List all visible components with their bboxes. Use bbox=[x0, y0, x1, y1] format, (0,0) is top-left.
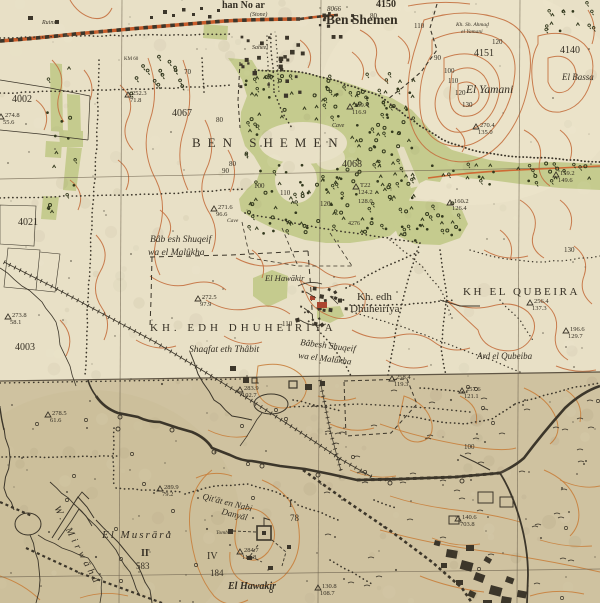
svg-text:4067: 4067 bbox=[172, 108, 192, 119]
svg-text:Cave: Cave bbox=[332, 123, 345, 129]
svg-text:116.9: 116.9 bbox=[352, 109, 366, 116]
svg-text:96.6: 96.6 bbox=[216, 211, 228, 218]
svg-text:120: 120 bbox=[320, 200, 331, 208]
svg-text:4068: 4068 bbox=[342, 159, 362, 170]
svg-text:El Yamani: El Yamani bbox=[465, 84, 513, 96]
svg-text:274.8: 274.8 bbox=[5, 112, 20, 119]
svg-text:284.7: 284.7 bbox=[244, 547, 259, 554]
svg-text:Bâb esh Shuqeif: Bâb esh Shuqeif bbox=[150, 234, 213, 245]
svg-text:289.9: 289.9 bbox=[164, 484, 179, 491]
svg-text:126.4: 126.4 bbox=[452, 205, 467, 212]
svg-text:(Stone): (Stone) bbox=[250, 11, 267, 18]
svg-text:137.3: 137.3 bbox=[532, 305, 547, 312]
svg-text:61.6: 61.6 bbox=[50, 417, 62, 424]
svg-text:71.8: 71.8 bbox=[130, 97, 141, 104]
svg-text:55.6: 55.6 bbox=[3, 119, 15, 126]
svg-text:160.2: 160.2 bbox=[454, 198, 469, 205]
svg-text:90: 90 bbox=[434, 54, 442, 62]
svg-text:278.5: 278.5 bbox=[52, 410, 67, 417]
svg-text:256.4: 256.4 bbox=[534, 298, 549, 305]
svg-text:124.2: 124.2 bbox=[358, 189, 373, 196]
svg-text:257.6: 257.6 bbox=[466, 386, 481, 393]
svg-text:4021: 4021 bbox=[18, 217, 38, 228]
svg-text:272.5: 272.5 bbox=[202, 294, 217, 301]
svg-text:4002: 4002 bbox=[12, 94, 32, 105]
svg-text:IV: IV bbox=[207, 551, 218, 562]
svg-text:130.8: 130.8 bbox=[322, 583, 337, 590]
svg-text:BEN SHEMEN: BEN SHEMEN bbox=[192, 135, 345, 150]
svg-text:159.2: 159.2 bbox=[560, 170, 575, 177]
svg-text:703.8: 703.8 bbox=[460, 521, 475, 528]
svg-text:4276: 4276 bbox=[348, 221, 360, 227]
svg-text:I: I bbox=[289, 499, 292, 510]
svg-text:Saheel: Saheel bbox=[252, 45, 268, 51]
svg-text:258.4: 258.4 bbox=[396, 374, 411, 381]
svg-text:El Hawakir: El Hawakir bbox=[227, 581, 276, 592]
svg-text:Kh. Sh. Ahmad: Kh. Sh. Ahmad bbox=[455, 22, 489, 28]
svg-text:KH EL QUBEIRA: KH EL QUBEIRA bbox=[463, 286, 580, 298]
svg-text:el Yamani: el Yamani bbox=[461, 29, 483, 35]
svg-text:130: 130 bbox=[462, 101, 473, 109]
svg-text:97.9: 97.9 bbox=[200, 301, 211, 308]
svg-text:58.1: 58.1 bbox=[10, 319, 21, 326]
svg-text:Shaqfat eth Thâbit: Shaqfat eth Thâbit bbox=[189, 344, 260, 355]
svg-text:KH. EDH DHUHEIRIYA: KH. EDH DHUHEIRIYA bbox=[150, 322, 337, 334]
svg-text:Kh. edh: Kh. edh bbox=[357, 291, 392, 303]
svg-text:wa el Malûkha: wa el Malûkha bbox=[148, 248, 205, 258]
svg-text:110.8: 110.8 bbox=[242, 554, 256, 561]
svg-text:4151: 4151 bbox=[474, 48, 494, 59]
svg-text:78: 78 bbox=[290, 513, 300, 523]
svg-text:Tomb: Tomb bbox=[216, 530, 228, 536]
svg-text:128.0: 128.0 bbox=[358, 198, 373, 205]
svg-text:El Bassa: El Bassa bbox=[561, 72, 594, 82]
svg-text:4140: 4140 bbox=[560, 45, 580, 56]
svg-text:100: 100 bbox=[464, 443, 475, 451]
svg-text:252.3: 252.3 bbox=[132, 90, 147, 97]
svg-text:129.7: 129.7 bbox=[568, 333, 583, 340]
svg-text:KM 60: KM 60 bbox=[124, 57, 139, 62]
svg-text:130: 130 bbox=[564, 246, 575, 254]
svg-text:70: 70 bbox=[184, 68, 192, 76]
svg-text:269.4: 269.4 bbox=[354, 102, 369, 109]
svg-text:119.3: 119.3 bbox=[394, 381, 408, 388]
svg-text:II: II bbox=[141, 548, 149, 559]
svg-text:140.6: 140.6 bbox=[462, 514, 477, 521]
svg-text:79.2: 79.2 bbox=[162, 491, 173, 498]
svg-text:102.7: 102.7 bbox=[242, 392, 257, 399]
svg-text:273.8: 273.8 bbox=[12, 312, 27, 319]
svg-text:121.1: 121.1 bbox=[464, 393, 479, 400]
svg-text:4150: 4150 bbox=[376, 0, 396, 10]
svg-text:Ben Shemen: Ben Shemen bbox=[326, 12, 398, 27]
svg-text:Ruins: Ruins bbox=[41, 20, 56, 26]
svg-text:184: 184 bbox=[210, 568, 224, 578]
svg-text:108.7: 108.7 bbox=[320, 590, 335, 597]
svg-text:120: 120 bbox=[492, 38, 503, 46]
svg-text:583: 583 bbox=[136, 561, 150, 571]
svg-text:110: 110 bbox=[448, 77, 459, 85]
svg-text:271.6: 271.6 bbox=[218, 204, 233, 211]
svg-text:135.0: 135.0 bbox=[478, 129, 493, 136]
svg-text:El Musrāra: El Musrāra bbox=[101, 529, 173, 541]
svg-text:270.4: 270.4 bbox=[480, 122, 495, 129]
svg-text:Dhuheirīya: Dhuheirīya bbox=[350, 303, 400, 315]
svg-text:110: 110 bbox=[414, 22, 425, 30]
svg-text:Ard el Qubeiba: Ard el Qubeiba bbox=[476, 351, 533, 361]
svg-text:El Hawākir: El Hawākir bbox=[264, 273, 305, 283]
svg-text:Cave: Cave bbox=[227, 218, 239, 224]
svg-text:283.9: 283.9 bbox=[244, 385, 259, 392]
svg-text:han No ar: han No ar bbox=[222, 0, 265, 11]
svg-text:4003: 4003 bbox=[15, 342, 35, 353]
svg-text:196.6: 196.6 bbox=[570, 326, 585, 333]
svg-text:T22: T22 bbox=[360, 182, 370, 189]
svg-text:80: 80 bbox=[229, 160, 237, 168]
svg-text:80: 80 bbox=[216, 116, 224, 124]
svg-text:149.6: 149.6 bbox=[558, 177, 573, 184]
